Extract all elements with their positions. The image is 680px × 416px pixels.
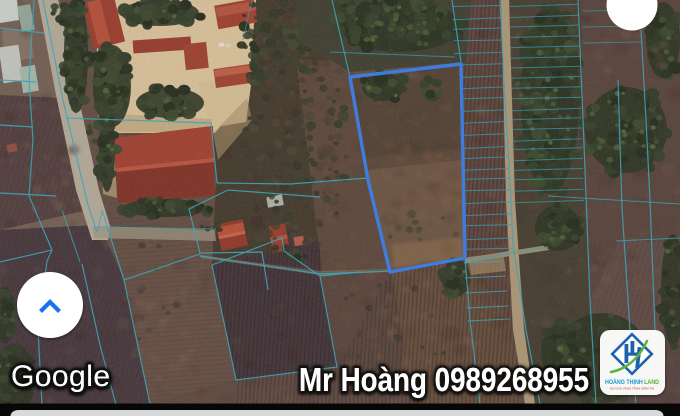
svg-text:Google: Google	[11, 360, 110, 393]
svg-text:Mr Hoàng 0989268955: Mr Hoàng 0989268955	[299, 361, 589, 398]
svg-text:HOÀNG THỊNH LAND: HOÀNG THỊNH LAND	[605, 377, 659, 386]
svg-text:NƠI GỬI VÀNG TRỌN NIỀM TIN: NƠI GỬI VÀNG TRỌN NIỀM TIN	[610, 386, 654, 391]
